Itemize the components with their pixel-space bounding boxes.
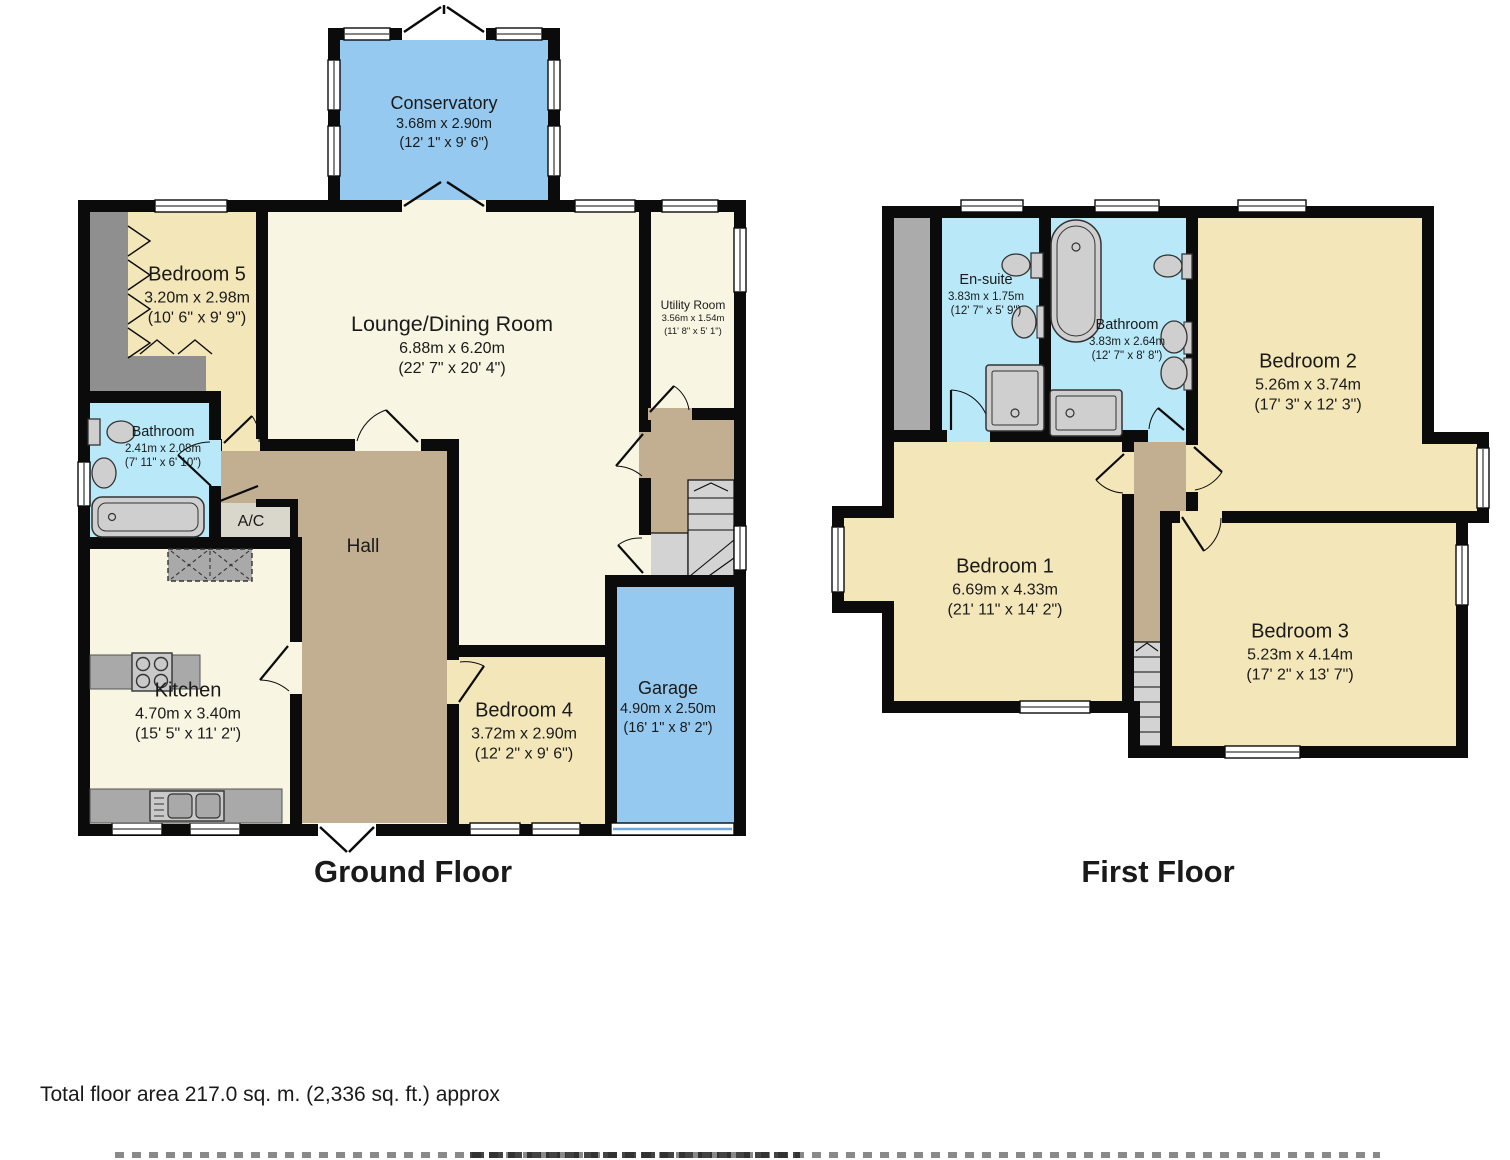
utility-label: Utility Room 3.56m x 1.54m (11' 8" x 5' … <box>661 298 726 338</box>
lounge-label: Lounge/Dining Room 6.88m x 6.20m (22' 7"… <box>351 311 553 379</box>
bedroom3-label: Bedroom 3 5.23m x 4.14m (17' 2" x 13' 7"… <box>1246 620 1353 687</box>
first-floor-title: First Floor <box>1081 854 1234 890</box>
airing-cupboard-label: A/C <box>238 512 265 532</box>
garage-door <box>611 823 734 835</box>
garage-label: Garage 4.90m x 2.50m (16' 1" x 8' 2") <box>620 677 716 737</box>
truncated-text-line-bold <box>470 1152 800 1158</box>
stair-landing <box>645 533 688 578</box>
floorplan-drawing <box>0 0 1510 1160</box>
bedroom2-label: Bedroom 2 5.26m x 3.74m (17' 3" x 12' 3"… <box>1254 350 1361 417</box>
total-floor-area-text: Total floor area 217.0 sq. m. (2,336 sq.… <box>40 1083 500 1107</box>
conservatory-label: Conservatory 3.68m x 2.90m (12' 1" x 9' … <box>390 92 497 152</box>
landing-upper <box>1128 436 1192 517</box>
ensuite-shower-tray <box>986 365 1044 431</box>
floorplan-page: Conservatory 3.68m x 2.90m (12' 1" x 9' … <box>0 0 1510 1160</box>
wardrobe-vertical <box>84 212 128 362</box>
ground-floor-title: Ground Floor <box>314 854 512 890</box>
toilet-cistern <box>88 419 100 445</box>
ensuite-label: En-suite 3.83m x 1.75m (12' 7" x 5' 9") <box>948 271 1024 319</box>
bathroom-toilet-bowl <box>1154 255 1182 277</box>
bathroom-shower-tray <box>1050 390 1122 436</box>
basin <box>92 458 116 488</box>
bathroom-ground-label: Bathroom 2.41m x 2.08m (7' 11" x 6' 10") <box>125 423 201 471</box>
bathroom-toilet-cistern <box>1182 254 1192 279</box>
bedroom4-label: Bedroom 4 3.72m x 2.90m (12' 2" x 9' 6") <box>471 699 577 766</box>
bedroom5-label: Bedroom 5 3.20m x 2.98m (10' 6" x 9' 9") <box>144 263 250 330</box>
kitchen-label: Kitchen 4.70m x 3.40m (15' 5" x 11' 2") <box>135 679 241 746</box>
wardrobe-horizontal <box>84 356 206 397</box>
bathroom-first-label: Bathroom 3.83m x 2.64m (12' 7" x 8' 8") <box>1089 316 1165 364</box>
bedroom1-label: Bedroom 1 6.69m x 4.33m (21' 11" x 14' 2… <box>947 555 1062 622</box>
ensuite-toilet-cistern <box>1031 253 1043 278</box>
void-gray-block <box>894 212 936 436</box>
hall-label: Hall <box>347 535 380 559</box>
first-floor-plan <box>832 200 1489 758</box>
